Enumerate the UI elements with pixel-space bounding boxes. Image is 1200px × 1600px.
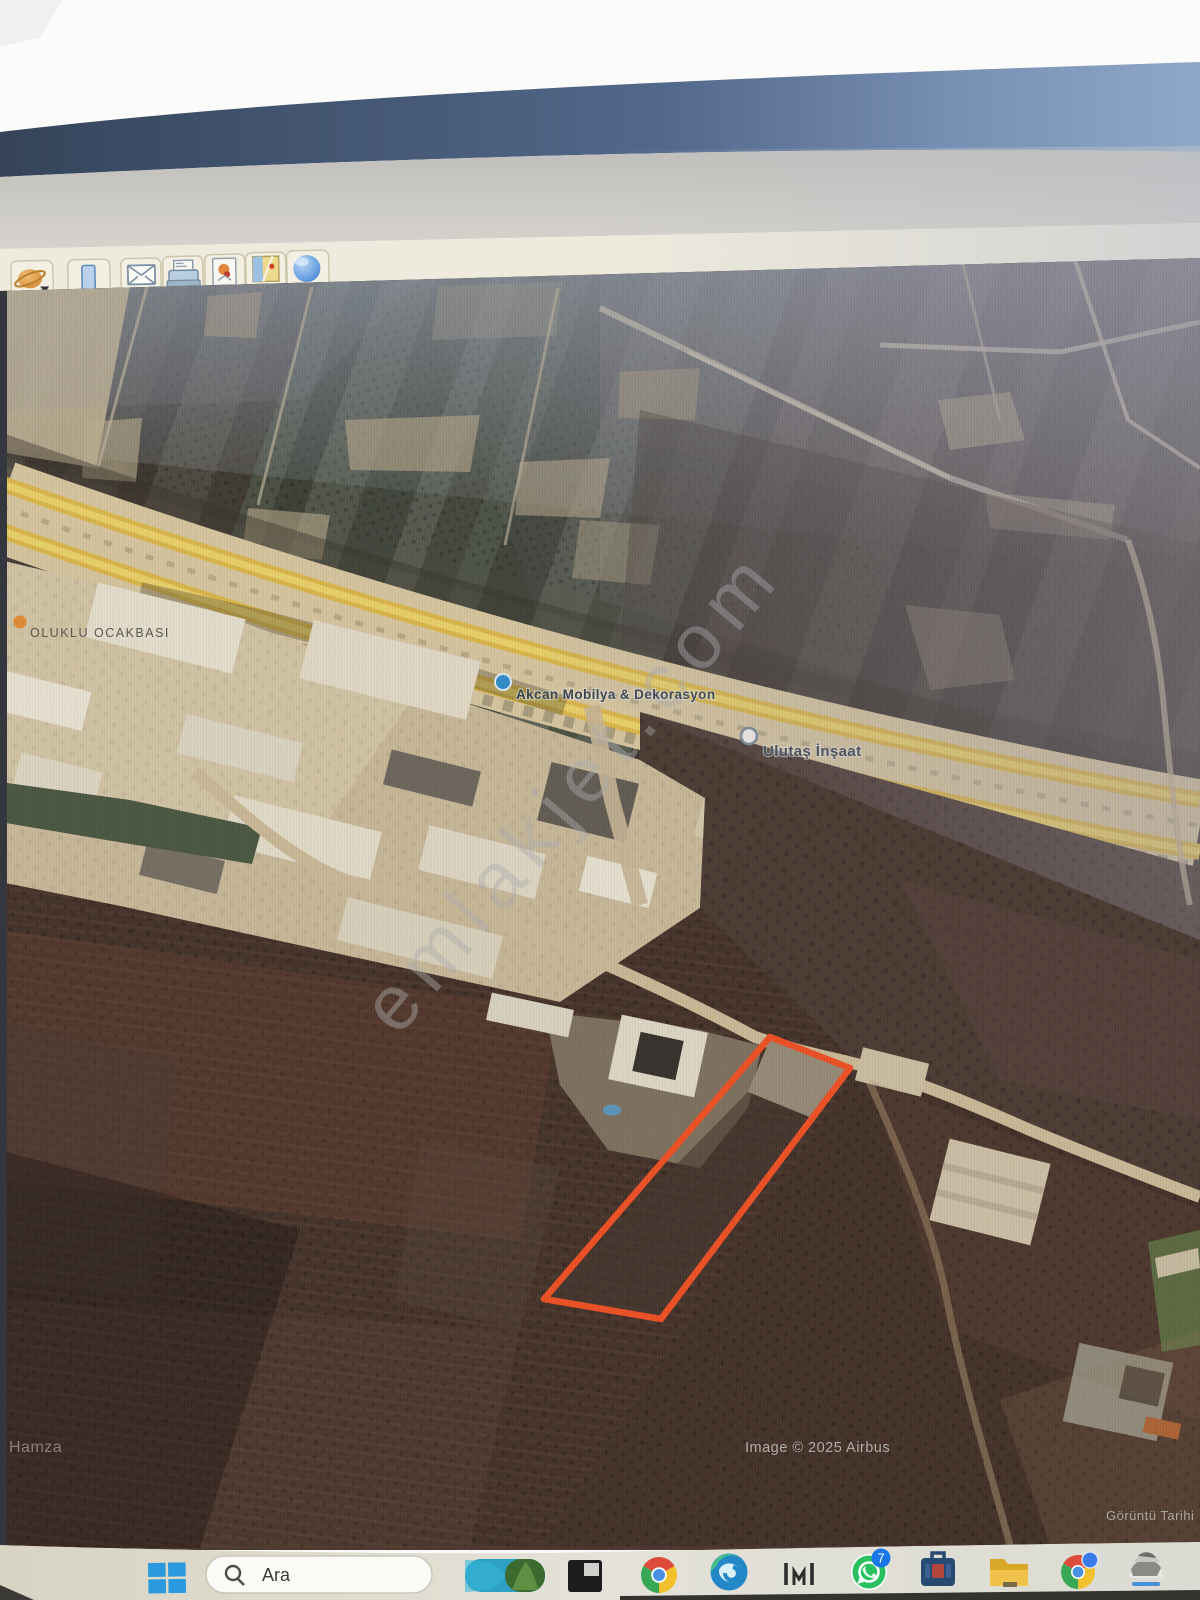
svg-text:7: 7 xyxy=(877,1551,884,1566)
svg-text:Ara: Ara xyxy=(262,1565,291,1585)
